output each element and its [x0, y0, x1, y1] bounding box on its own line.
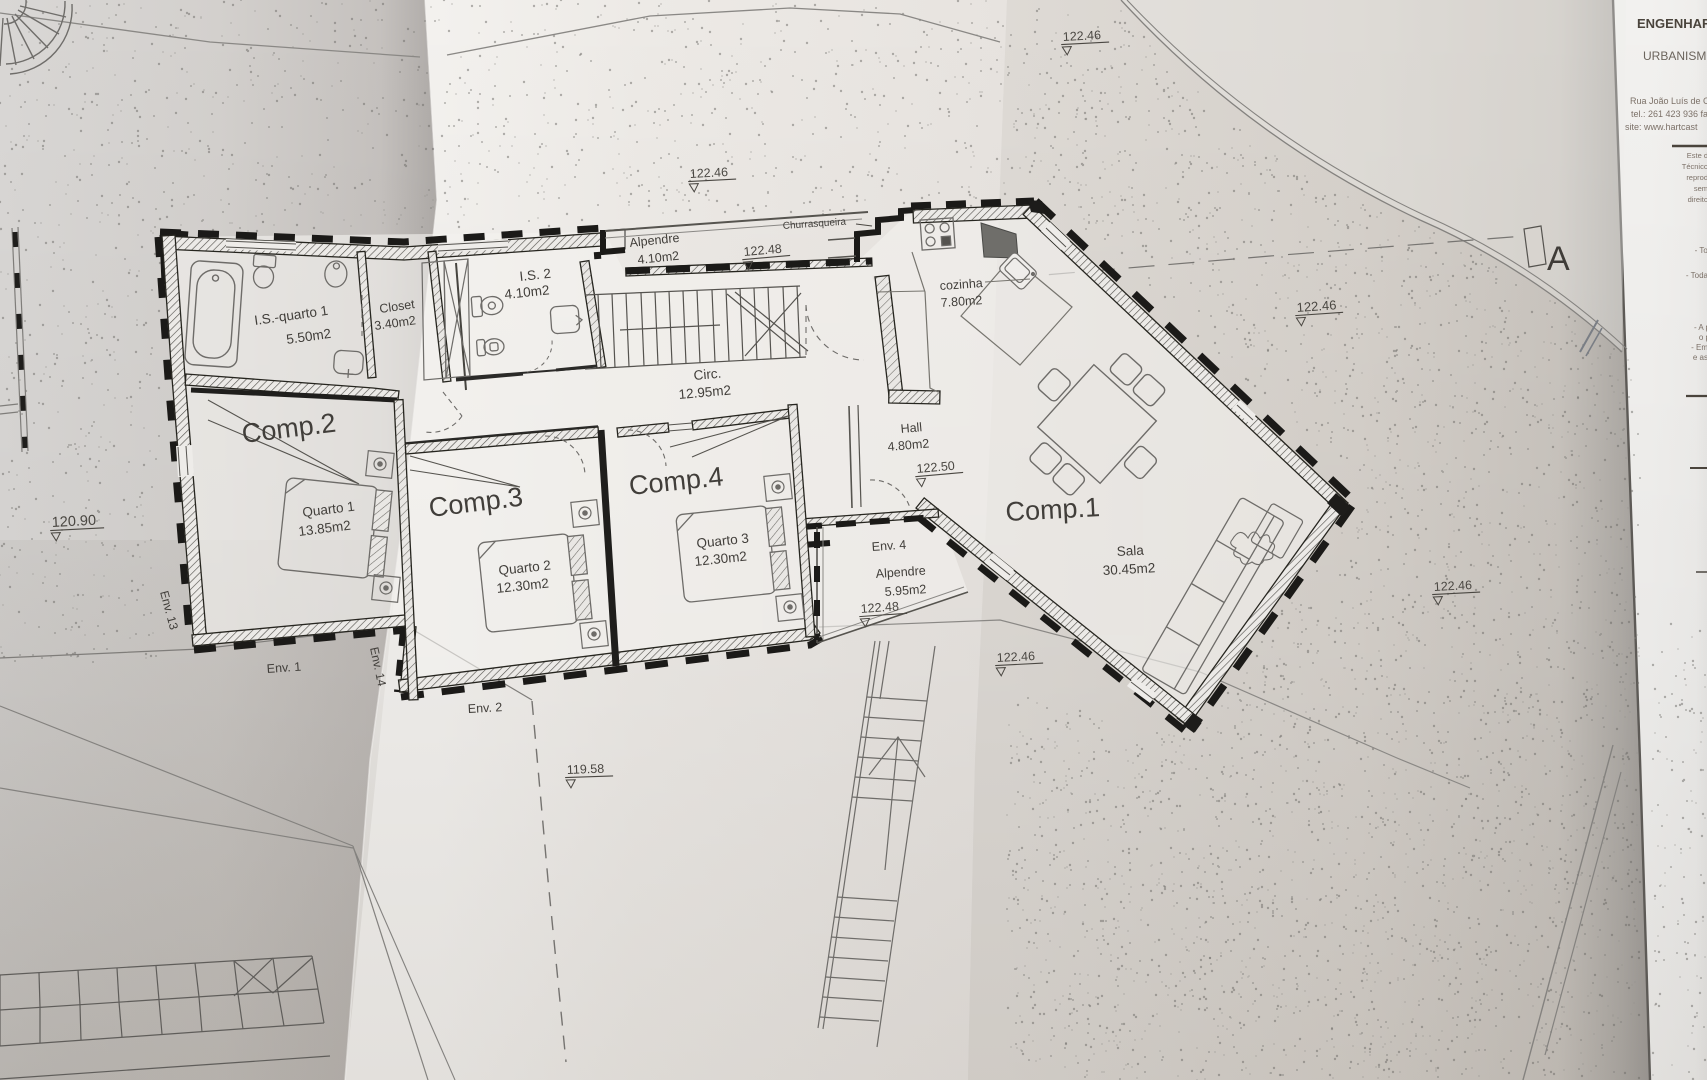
- svg-text:122.46: 122.46: [689, 165, 728, 181]
- svg-text:Este d: Este d: [1687, 151, 1707, 160]
- svg-text:e as: e as: [1693, 353, 1707, 362]
- svg-text:Hall: Hall: [900, 420, 923, 436]
- svg-text:- Toda: - Toda: [1686, 271, 1707, 280]
- svg-text:- A p: - A p: [1694, 323, 1707, 332]
- svg-text:Env. 1: Env. 1: [266, 660, 301, 676]
- svg-text:Técnico: Técnico: [1682, 162, 1707, 171]
- svg-text:Env. 2: Env. 2: [467, 700, 502, 716]
- svg-text:5.95m2: 5.95m2: [884, 582, 927, 599]
- svg-text:7.80m2: 7.80m2: [940, 293, 983, 310]
- svg-text:sem: sem: [1694, 184, 1707, 193]
- svg-text:ENGENHARIA: ENGENHARIA: [1637, 16, 1707, 31]
- svg-text:Rua João Luís de C: Rua João Luís de C: [1630, 96, 1707, 106]
- svg-text:o p: o p: [1699, 333, 1707, 342]
- svg-text:- Tot: - Tot: [1695, 246, 1707, 255]
- svg-text:Comp.1: Comp.1: [1005, 492, 1101, 527]
- svg-text:A: A: [1547, 240, 1570, 278]
- svg-text:site: www.hartcast: site: www.hartcast: [1625, 122, 1698, 132]
- svg-text:Sala: Sala: [1116, 543, 1144, 559]
- svg-text:direito: direito: [1688, 195, 1707, 204]
- svg-text:- Em: - Em: [1691, 343, 1707, 352]
- svg-text:30.45m2: 30.45m2: [1102, 560, 1155, 578]
- svg-text:URBANISMO: URBANISMO: [1643, 49, 1707, 63]
- svg-text:122.46: 122.46: [1062, 28, 1101, 44]
- svg-text:Env. 4: Env. 4: [871, 538, 906, 554]
- svg-text:122.46: 122.46: [1433, 578, 1472, 594]
- svg-text:119.58: 119.58: [567, 762, 605, 777]
- svg-text:122.46: 122.46: [1296, 297, 1337, 315]
- svg-text:122.46: 122.46: [996, 649, 1035, 665]
- svg-text:tel.: 261 423 936 fa: tel.: 261 423 936 fa: [1631, 109, 1707, 119]
- svg-text:reprod: reprod: [1686, 173, 1707, 182]
- svg-text:Circ.: Circ.: [693, 366, 722, 383]
- svg-text:122.48: 122.48: [860, 599, 899, 616]
